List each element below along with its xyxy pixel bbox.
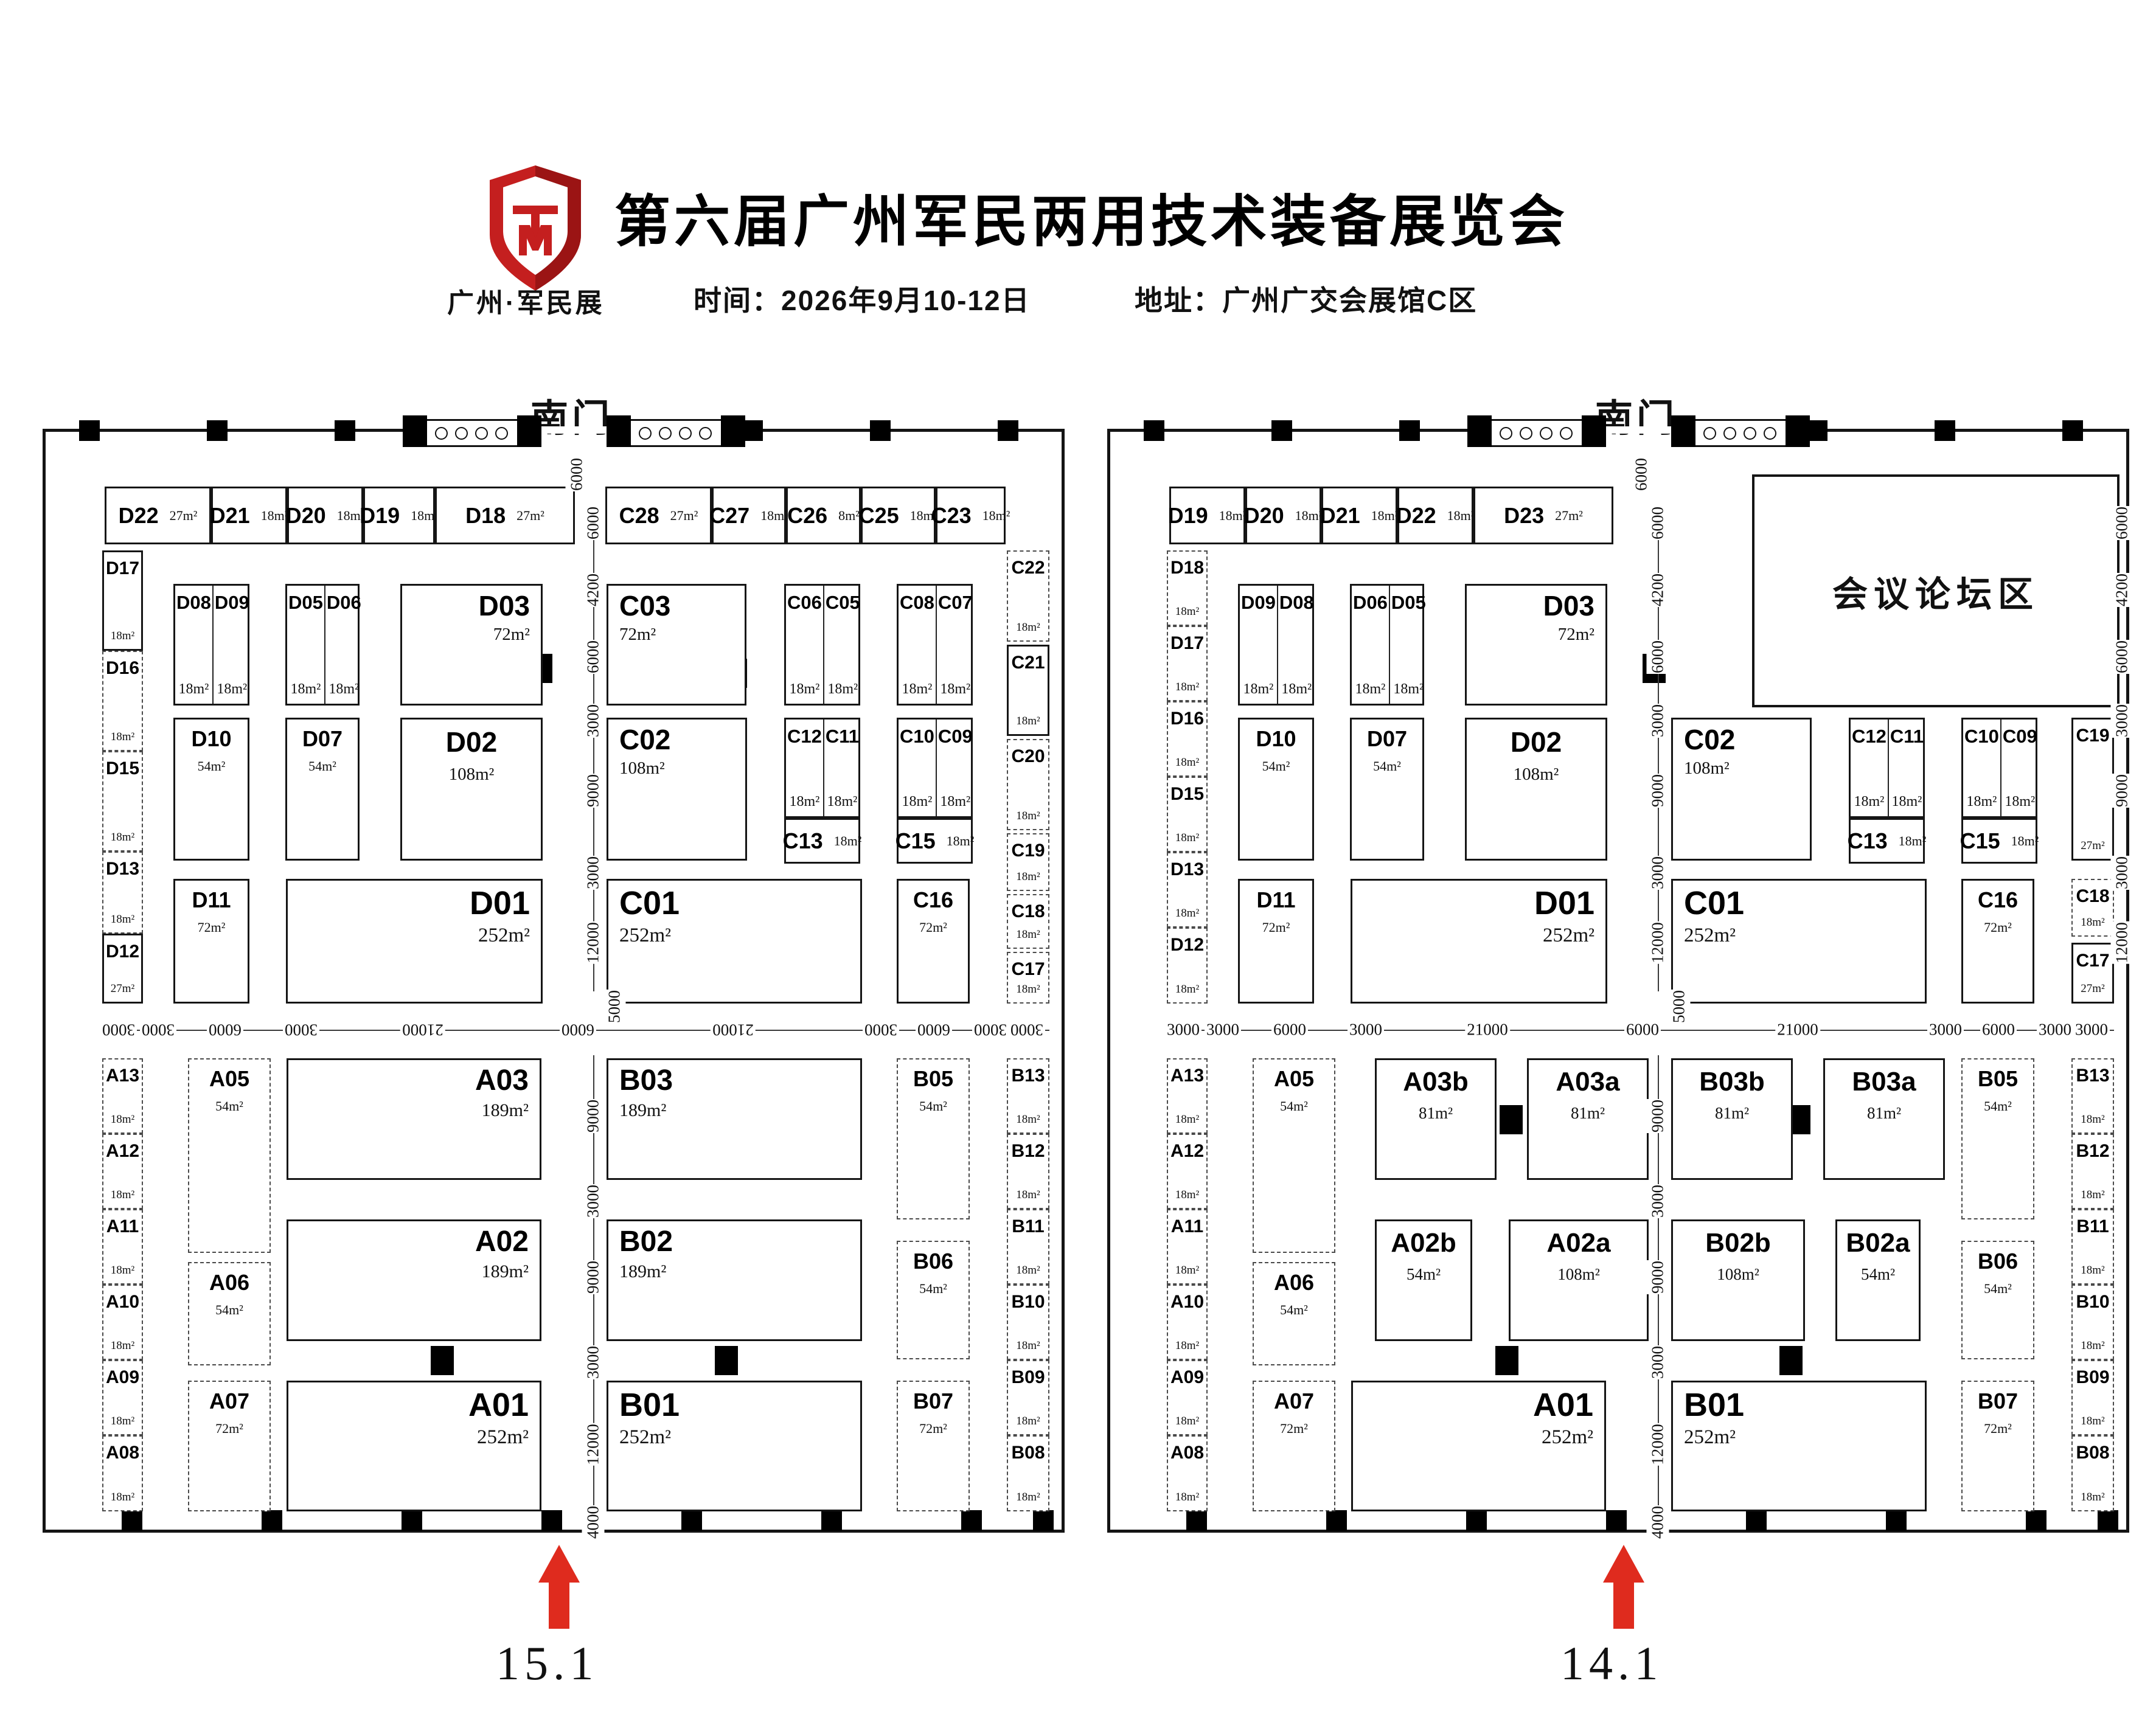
booth-area: 18m² (1016, 1491, 1040, 1503)
booth-area: 18m² (1892, 794, 1922, 809)
address-label: 地址：广州广交会展馆C区 (1135, 279, 1477, 319)
edge-dimension: 6000 (2111, 506, 2133, 540)
booth-C18: C1818m² (2071, 879, 2114, 937)
booth-code: C13 (1848, 830, 1888, 852)
booth-code: A05 (209, 1068, 249, 1090)
booth-code: C06 (787, 593, 822, 612)
booth-C27: C2718m² (712, 487, 786, 544)
booth-code: C01 (1684, 887, 1744, 920)
booth-A01: A01252m² (287, 1381, 541, 1511)
booth-C16: C1672m² (1961, 879, 2034, 1004)
booth-code: D16 (1170, 710, 1204, 728)
booth-area: 18m² (1175, 1340, 1199, 1351)
lower-dimension: 4000 (1647, 1505, 1669, 1539)
booth-C15: C1518m² (897, 818, 973, 864)
divider-dimension: 3000 (863, 1020, 899, 1040)
booth-area: 108m² (1717, 1266, 1759, 1283)
booth-D12: D1227m² (102, 934, 143, 1004)
lower-dimension: 12000 (582, 1423, 605, 1466)
upper-dimension: 12000 (1647, 921, 1669, 964)
booth-D08: D0818m² (175, 586, 212, 704)
wall-pillar (870, 420, 891, 441)
booth-area: 18m² (111, 1340, 134, 1351)
booth-A01: A01252m² (1351, 1381, 1606, 1511)
booth-code: D13 (1170, 861, 1204, 879)
booth-area: 18m² (291, 682, 321, 696)
booth-code: B07 (1978, 1390, 2018, 1412)
booth-code: D18 (1170, 559, 1204, 577)
divider-dimension: 3000 (1165, 1020, 1201, 1040)
booth-code: D03 (479, 592, 530, 620)
booth-code: A06 (209, 1272, 249, 1294)
booth-C05: C0518m² (823, 586, 861, 704)
booth-area: 54m² (1373, 760, 1401, 773)
booth-area: 18m² (111, 1264, 134, 1276)
gate-dot-icon (1723, 427, 1736, 440)
booth-C01: C01252m² (607, 879, 862, 1004)
booth-pair: D0518m²D0618m² (285, 584, 360, 706)
upper-dimension: 3000 (582, 856, 605, 890)
booth-code: B12 (1011, 1142, 1045, 1160)
booth-B08: B0818m² (1007, 1435, 1049, 1511)
booth-D13: D1318m² (1167, 852, 1208, 928)
booth-code: C16 (913, 889, 953, 911)
booth-area: 18m² (2081, 1340, 2104, 1351)
booth-pair: C0618m²C0518m² (784, 584, 860, 706)
gate-turnstile-icon (630, 419, 721, 447)
wall-pillar (1326, 1510, 1347, 1531)
booth-area: 72m² (1558, 626, 1594, 643)
booth-code: A03a (1556, 1069, 1619, 1095)
booth-D02: D02108m² (1465, 718, 1607, 861)
wall-pillar (1033, 1510, 1054, 1531)
wall-pillar (742, 420, 763, 441)
booth-area: 54m² (308, 760, 336, 773)
booth-code: B03a (1852, 1069, 1916, 1095)
booth-area: 27m² (170, 509, 198, 522)
lower-dimension: 12000 (1647, 1423, 1669, 1466)
booth-code: D02 (1511, 728, 1562, 756)
booth-code: D01 (470, 887, 530, 920)
wall-pillar (961, 1510, 982, 1531)
booth-area: 252m² (1542, 1427, 1593, 1448)
gate-post (403, 415, 427, 447)
gate-dot-icon (1744, 427, 1756, 440)
gate-dimension: 6000 (1630, 457, 1653, 491)
wall-pillar (541, 1510, 562, 1531)
booth-code: C17 (2076, 952, 2109, 970)
booth-code: D05 (1391, 593, 1426, 612)
booth-code: D08 (1279, 593, 1314, 612)
booth-area: 252m² (478, 926, 530, 946)
booth-code: D09 (215, 593, 249, 612)
booth-D10: D1054m² (1238, 718, 1314, 861)
divider-dimension: 3000 (283, 1020, 319, 1040)
booth-D01: D01252m² (286, 879, 543, 1004)
booth-D07: D0754m² (285, 718, 360, 861)
booth-area: 54m² (215, 1303, 243, 1317)
booth-area: 27m² (1555, 509, 1583, 522)
booth-area: 18m² (261, 509, 289, 522)
wall-pillar (1935, 420, 1955, 441)
booth-D08: D0818m² (1277, 586, 1315, 704)
booth-D11: D1172m² (1238, 879, 1314, 1004)
booth-area: 18m² (1175, 1189, 1199, 1201)
booth-code: A01 (1533, 1389, 1593, 1421)
booth-code: C17 (1011, 960, 1045, 979)
divider-dimension-vertical: 5000 (1668, 990, 1691, 1024)
booth-D09: D0918m² (1240, 586, 1277, 704)
gate-dot-icon (699, 427, 712, 440)
booth-area: 81m² (1571, 1105, 1605, 1122)
upper-dimension: 3000 (1647, 704, 1669, 738)
booth-area: 18m² (1016, 1189, 1040, 1201)
wall-pillar (335, 420, 355, 441)
booth-B03a: B03a81m² (1823, 1058, 1945, 1180)
gate-post (1671, 415, 1695, 447)
booth-code: C11 (826, 727, 859, 746)
booth-code: C10 (900, 727, 934, 746)
gate-dot-icon (1764, 427, 1776, 440)
divider-dimension: 3000 (2073, 1020, 2110, 1040)
booth-area: 27m² (2081, 983, 2104, 994)
booth-code: C26 (787, 505, 827, 527)
edge-dimension: 3000 (2111, 704, 2133, 738)
booth-C13: C1318m² (784, 818, 860, 864)
divider-dimension: 6000 (1980, 1020, 2017, 1040)
booth-A13: A1318m² (1167, 1058, 1208, 1134)
booth-area: 18m² (940, 794, 970, 809)
booth-D03: D0372m² (400, 584, 543, 706)
gate-dot-icon (1703, 427, 1716, 440)
booth-B02a: B02a54m² (1835, 1219, 1921, 1341)
booth-code: D23 (1504, 505, 1544, 527)
booth-area: 72m² (919, 1422, 947, 1435)
booth-area: 18m² (1243, 682, 1274, 696)
booth-code: C16 (1978, 889, 2018, 911)
booth-C02: C02108m² (607, 718, 747, 861)
booth-area: 8m² (838, 509, 860, 522)
booth-code: B13 (1011, 1067, 1045, 1085)
booth-C19: C1927m² (2071, 718, 2114, 861)
booth-D15: D1518m² (1167, 777, 1208, 852)
booth-area: 18m² (179, 682, 209, 696)
booth-area: 18m² (217, 682, 247, 696)
booth-code: A10 (1170, 1293, 1204, 1311)
upper-dimension: 6000 (582, 506, 605, 540)
booth-code: D11 (192, 889, 231, 911)
booth-area: 72m² (215, 1422, 243, 1435)
lower-dimension: 9000 (582, 1099, 605, 1133)
booth-code: D20 (286, 505, 326, 527)
booth-area: 72m² (919, 921, 947, 934)
booth-code: B07 (913, 1390, 953, 1412)
booth-code: A07 (1274, 1390, 1314, 1412)
booth-A11: A1118m² (1167, 1209, 1208, 1285)
entrance-arrow-icon (549, 1581, 569, 1629)
booth-area: 72m² (493, 626, 530, 643)
upper-dimension: 3000 (582, 704, 605, 738)
booth-area: 18m² (1016, 983, 1040, 995)
booth-A07: A0772m² (188, 1381, 271, 1511)
upper-dimension: 3000 (1647, 856, 1669, 890)
booth-code: C18 (2076, 887, 2109, 906)
booth-D03: D0372m² (1465, 584, 1607, 706)
booth-area: 252m² (1684, 926, 1736, 946)
booth-D17: D1718m² (102, 550, 143, 651)
gate-post (721, 415, 745, 447)
hall-number-label: 14.1 (1560, 1636, 1663, 1691)
booth-A03b: A03b81m² (1375, 1058, 1497, 1180)
booth-area: 18m² (760, 509, 788, 522)
booth-C12: C1218m² (1851, 720, 1888, 816)
booth-code: D18 (465, 505, 506, 527)
booth-code: C21 (1011, 654, 1045, 672)
gate-dot-icon (639, 427, 652, 440)
gate-turnstile-icon (1490, 419, 1582, 447)
gate-dot-icon (475, 427, 488, 440)
wall-pillar (2098, 1510, 2118, 1531)
booth-code: D11 (1256, 889, 1295, 911)
booth-C16: C1672m² (897, 879, 970, 1004)
divider-dimension: 6000 (1271, 1020, 1308, 1040)
booth-C25: C2518m² (861, 487, 936, 544)
booth-area: 18m² (1175, 681, 1199, 693)
booth-A10: A1018m² (1167, 1285, 1208, 1360)
booth-area: 252m² (477, 1427, 529, 1448)
wall-pillar (998, 420, 1018, 441)
booth-C21: C2118m² (1007, 645, 1049, 736)
gate-turnstile-icon (1694, 419, 1786, 447)
booth-area: 18m² (111, 1491, 134, 1503)
gate-dot-icon (435, 427, 448, 440)
booth-code: C27 (709, 505, 749, 527)
booth-code: A06 (1274, 1272, 1314, 1294)
booth-B05: B0554m² (897, 1058, 970, 1219)
booth-code: A08 (1170, 1444, 1204, 1462)
booth-area: 81m² (1419, 1105, 1453, 1122)
booth-code: B12 (2076, 1142, 2109, 1160)
booth-area: 18m² (1016, 1340, 1040, 1351)
booth-code: C02 (619, 726, 670, 754)
booth-area: 18m² (790, 682, 820, 696)
booth-area: 18m² (111, 1114, 134, 1125)
gate-dot-icon (1560, 427, 1573, 440)
booth-area: 18m² (902, 794, 933, 809)
booth-area: 18m² (1447, 509, 1475, 522)
booth-area: 18m² (982, 509, 1010, 522)
booth-area: 18m² (1175, 1114, 1199, 1125)
booth-area: 18m² (1016, 810, 1040, 822)
gate-dot-icon (1500, 427, 1512, 440)
edge-dimension: 9000 (2111, 774, 2133, 808)
gate-dimension: 6000 (566, 457, 588, 491)
booth-area: 252m² (1684, 1427, 1736, 1448)
booth-C20: C2018m² (1007, 739, 1049, 830)
column-pillar (715, 1346, 738, 1375)
booth-area: 18m² (329, 682, 359, 696)
wall-pillar (1466, 1510, 1487, 1531)
booth-pair: C1218m²C1118m² (1849, 718, 1925, 818)
booth-code: D03 (1543, 592, 1594, 620)
booth-code: A01 (468, 1389, 529, 1421)
booth-area: 18m² (1219, 509, 1247, 522)
booth-area: 18m² (111, 1189, 134, 1201)
booth-code: D10 (1256, 728, 1296, 750)
booth-D12: D1218m² (1167, 928, 1208, 1004)
booth-area: 54m² (1280, 1303, 1308, 1317)
booth-A02: A02189m² (287, 1219, 541, 1341)
lower-dimension: 3000 (1647, 1184, 1669, 1218)
wall-pillar (1886, 1510, 1907, 1531)
booth-code: A09 (1170, 1368, 1204, 1387)
booth-C19: C1918m² (1007, 833, 1049, 891)
booth-code: A05 (1274, 1068, 1314, 1090)
booth-code: B10 (1011, 1293, 1045, 1311)
booth-C08: C0818m² (899, 586, 936, 704)
booth-area: 108m² (1684, 760, 1730, 777)
booth-area: 54m² (198, 760, 226, 773)
booth-area: 18m² (1016, 715, 1040, 727)
booth-code: D12 (1170, 936, 1204, 954)
divider-dimension: 6000 (207, 1020, 243, 1040)
booth-D02: D02108m² (400, 718, 543, 861)
booth-B02: B02189m² (607, 1219, 862, 1341)
edge-dimension: 4200 (2111, 573, 2133, 607)
upper-dimension: 4200 (1647, 573, 1669, 607)
wall-pillar (1271, 420, 1292, 441)
column-pillar (1500, 1105, 1523, 1134)
booth-area: 18m² (827, 794, 858, 809)
booth-code: C13 (783, 830, 823, 852)
booth-code: B10 (2076, 1293, 2109, 1311)
booth-D11: D1172m² (173, 879, 249, 1004)
booth-D16: D1618m² (1167, 701, 1208, 777)
booth-code: A11 (1171, 1218, 1203, 1236)
booth-A13: A1318m² (102, 1058, 143, 1134)
booth-C18: C1818m² (1007, 894, 1049, 949)
booth-area: 18m² (1175, 1491, 1199, 1503)
booth-code: D07 (302, 728, 343, 750)
booth-code: B09 (1011, 1368, 1045, 1387)
wall-pillar (1144, 420, 1164, 441)
booth-code: D05 (288, 593, 323, 612)
lower-dimension: 9000 (582, 1260, 605, 1294)
booth-code: B11 (1012, 1218, 1044, 1236)
booth-code: D21 (210, 505, 250, 527)
column-pillar (1779, 1346, 1803, 1375)
booth-code: C09 (938, 727, 973, 746)
booth-code: D01 (1534, 887, 1594, 920)
divider-dimension: 3000 (1009, 1020, 1045, 1040)
booth-D20: D2018m² (1245, 487, 1321, 544)
divider-dimension-center: 6000 (1624, 1020, 1661, 1040)
booth-B12: B1218m² (1007, 1134, 1049, 1209)
booth-code: C09 (2003, 727, 2037, 746)
booth-area: 18m² (1175, 832, 1199, 844)
booth-B01: B01252m² (607, 1381, 862, 1511)
booth-code: A12 (1170, 1142, 1204, 1160)
booth-B13: B1318m² (2071, 1058, 2114, 1134)
booth-area: 18m² (2081, 1114, 2104, 1125)
booth-code: B01 (619, 1389, 680, 1421)
booth-area: 54m² (215, 1100, 243, 1113)
booth-code: C08 (900, 593, 934, 612)
booth-code: C25 (859, 505, 899, 527)
booth-code: D22 (1396, 505, 1436, 527)
exhibition-logo-icon (484, 163, 587, 294)
booth-code: C20 (1011, 747, 1045, 766)
booth-code: B01 (1684, 1389, 1744, 1421)
booth-D07: D0754m² (1350, 718, 1424, 861)
booth-area: 252m² (1543, 926, 1594, 946)
booth-area: 54m² (1984, 1282, 2012, 1295)
wall-pillar (1399, 420, 1420, 441)
booth-code: A09 (106, 1368, 139, 1387)
booth-B13: B1318m² (1007, 1058, 1049, 1134)
booth-area: 81m² (1867, 1105, 1901, 1122)
booth-code: B11 (2076, 1218, 2109, 1236)
booth-pair: D0918m²D0818m² (1238, 584, 1314, 706)
booth-area: 27m² (670, 509, 698, 522)
booth-area: 18m² (1175, 907, 1199, 919)
booth-code: C11 (1890, 727, 1924, 746)
booth-area: 108m² (1557, 1266, 1600, 1283)
booth-area: 27m² (2081, 840, 2104, 851)
booth-C15: C1518m² (1961, 818, 2037, 864)
booth-A09: A0918m² (1167, 1360, 1208, 1435)
booth-area: 18m² (111, 1415, 134, 1427)
booth-area: 18m² (1016, 871, 1040, 883)
booth-A12: A1218m² (102, 1134, 143, 1209)
booth-C12: C1218m² (786, 720, 823, 816)
booth-A06: A0654m² (1253, 1262, 1335, 1365)
hall-14-1: 南门会议论坛区D1918m²D2018m²D2118m²D2218m²D2327… (1107, 392, 2135, 1676)
booth-code: C18 (1011, 903, 1045, 921)
hall-15-1: 南门D2227m²D2118m²D2018m²D1918m²D1827m²C28… (43, 392, 1071, 1676)
booth-code: D13 (106, 860, 139, 878)
booth-D23: D2327m² (1473, 487, 1613, 544)
gate-dot-icon (659, 427, 672, 440)
booth-area: 18m² (1016, 929, 1040, 940)
gate-dot-icon (455, 427, 468, 440)
gate-dot-icon (679, 427, 692, 440)
booth-area: 18m² (2081, 1189, 2104, 1201)
wall-pillar (681, 1510, 702, 1531)
booth-area: 18m² (1175, 1264, 1199, 1276)
booth-area: 189m² (619, 1263, 666, 1281)
booth-area: 18m² (834, 834, 862, 848)
booth-code: A08 (106, 1444, 139, 1462)
booth-code: D19 (1168, 505, 1208, 527)
booth-A05: A0554m² (1253, 1058, 1335, 1253)
booth-code: B05 (913, 1068, 953, 1090)
booth-code: A11 (106, 1218, 139, 1236)
booth-code: C22 (1011, 559, 1045, 577)
booth-B09: B0918m² (2071, 1360, 2114, 1435)
booth-area: 18m² (1016, 622, 1040, 633)
booth-A02b: A02b54m² (1375, 1219, 1472, 1341)
booth-B01: B01252m² (1671, 1381, 1927, 1511)
divider-dimension: 3000 (1348, 1020, 1384, 1040)
booth-D01: D01252m² (1351, 879, 1607, 1004)
booth-area: 72m² (1984, 1422, 2012, 1435)
booth-D21: D2118m² (1321, 487, 1397, 544)
wall-pillar (2062, 420, 2083, 441)
booth-code: D09 (1241, 593, 1276, 612)
divider-dimension-vertical: 5000 (603, 990, 626, 1024)
booth-C03: C0372m² (607, 584, 746, 706)
